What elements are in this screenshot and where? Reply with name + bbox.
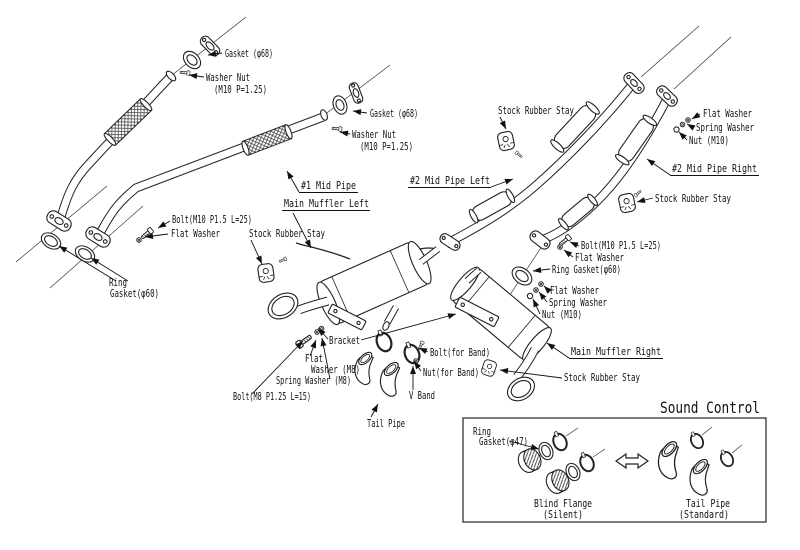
gasket-68-label-2: Gasket (φ68) <box>370 107 418 120</box>
flat-washer-right-glyph <box>558 245 563 250</box>
v-band-label: V Band <box>409 389 435 402</box>
sound-tail-pipe-2 <box>687 456 714 496</box>
stock-rubber-stay-bottom-glyph <box>481 359 498 377</box>
stock-rubber-stay-label-bottom: Stock Rubber Stay <box>564 371 640 384</box>
bracket-label: Bracket <box>329 334 360 347</box>
tail-pipe-2 <box>379 360 402 397</box>
sound-control-title: Sound Control <box>660 398 760 417</box>
ring-gasket-60-right-glyph <box>509 263 536 288</box>
muffler-right-tip <box>503 372 539 405</box>
main-muffler-left-label: Main Muffler Left <box>284 197 369 210</box>
gasket-68-label-1: Gasket (φ68) <box>225 47 273 60</box>
swap-arrow-icon <box>616 454 648 468</box>
mid-pipe-2-left-label: #2 Mid Pipe Left <box>410 174 490 187</box>
stay-pin-right <box>634 190 642 198</box>
stock-rubber-stay-label-right: Stock Rubber Stay <box>655 192 731 205</box>
flange-left <box>198 34 221 57</box>
spring-washer-r-glyph <box>534 288 539 293</box>
flat-washer-label-left: Flat Washer <box>171 227 220 240</box>
sound-clamp-2 <box>717 448 735 469</box>
mid-pipe-2-left <box>438 70 646 252</box>
stay-pin-center <box>279 257 288 264</box>
nut-m10-label-r: Nut (M10) <box>542 308 582 321</box>
bolt-for-band-label: Bolt(for Band) <box>430 346 490 359</box>
main-muffler-right-label: Main Muffler Right <box>571 345 661 358</box>
spring-washer-m8-label: Spring Washer (M8) <box>276 374 351 387</box>
spring-washer-tr-glyph <box>680 122 685 127</box>
tail-pipe-label: Tail Pipe <box>367 417 405 430</box>
flat-washer-r2-glyph <box>539 282 544 287</box>
sound-clamp-1 <box>687 430 705 451</box>
stay-pin-top <box>515 151 523 159</box>
washer-nut-spec-label-2: (M10 P=1.25) <box>360 140 413 153</box>
nut-for-band-label: Nut(for Band) <box>423 366 479 379</box>
stock-rubber-stay-label-center: Stock Rubber Stay <box>249 227 325 240</box>
ring-gasket-60-right-label: Ring Gasket(φ60) <box>552 263 621 276</box>
stock-rubber-stay-top-glyph <box>497 131 515 152</box>
blind-flange-variant-label: (Silent) <box>543 508 583 521</box>
nut-m10-label-tr: Nut (M10) <box>689 134 729 147</box>
sound-tail-pipe-variant-label: (Standard) <box>679 508 729 521</box>
sound-tail-pipe-1 <box>655 438 683 480</box>
ring-gasket-47-label-2: Gasket(φ47) <box>479 435 528 448</box>
v-band-2 <box>401 340 422 366</box>
spring-washer-label-tr: Spring Washer <box>696 121 754 134</box>
washer-nut-bolt-1 <box>180 70 190 75</box>
exhaust-parts-diagram: Gasket (φ68) Washer Nut (M10 P=1.25) Gas… <box>0 0 800 550</box>
bolt-m8-label: Bolt(M8 P1.25 L=15) <box>233 390 311 403</box>
gasket-68-left <box>180 48 204 72</box>
flat-washer-tr-glyph <box>686 118 691 123</box>
ring-gasket-60-left-label-2: Gasket(φ60) <box>110 287 159 300</box>
nut-m10-tr-glyph <box>674 127 679 132</box>
mid-pipe-1-label: #1 Mid Pipe <box>301 179 356 192</box>
gasket-68-right <box>331 94 350 116</box>
bolt-m10-label-left: Bolt(M10 P1.5 L=25) <box>172 213 252 226</box>
flat-washer-m8-glyph <box>315 330 320 335</box>
mid-pipe-2-right-label: #2 Mid Pipe Right <box>672 162 757 175</box>
washer-nut-spec-label-1: (M10 P=1.25) <box>214 83 267 96</box>
flat-washer-left-glyph <box>137 238 142 243</box>
diagram-canvas: Gasket (φ68) Washer Nut (M10 P=1.25) Gas… <box>0 0 800 550</box>
ring-gasket-60-a <box>38 229 63 252</box>
washer-nut-bolt-2 <box>332 126 342 131</box>
stock-rubber-stay-center-glyph <box>257 263 274 283</box>
flange-right <box>348 82 364 105</box>
muffler-left-tip <box>263 288 302 324</box>
stock-rubber-stay-right-glyph <box>618 193 636 214</box>
nut-m10-right-glyph <box>527 293 532 298</box>
bolt-m10-left-glyph <box>140 227 154 240</box>
flat-washer-label-tr: Flat Washer <box>703 107 752 120</box>
stock-rubber-stay-label-top: Stock Rubber Stay <box>498 104 574 117</box>
